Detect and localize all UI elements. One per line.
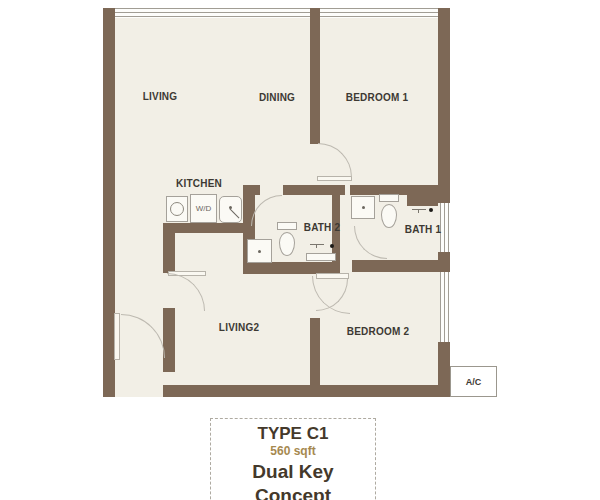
room-label-living2: LIVING2 [219,322,259,333]
room-label-bath1: BATH 1 [405,224,442,235]
room-label-bedroom2: BEDROOM 2 [347,326,409,337]
ac-ledge: A/C [450,366,497,397]
plan-area-label: 560 sqft [215,444,371,460]
room-label-bath2: BATH 2 [304,222,341,233]
toilet-tank-icon-bath1 [379,194,399,202]
room-label-kitchen: KITCHEN [176,178,222,189]
plan-concept-label: Dual Key Concept [215,460,371,500]
window-bedroom2 [440,272,449,342]
hob-burner-icon [170,202,184,216]
shower-step-bath2 [306,253,336,261]
room-label-living: LIVING [143,91,178,102]
room-label-bedroom1: BEDROOM 1 [346,92,408,103]
wall-bottom [163,385,450,397]
wall-kitchen-bottom [163,223,243,233]
room-label-dining: DINING [259,92,295,103]
toilet-tank-icon-bath2 [277,222,297,230]
washer-dryer-icon: W/D [190,194,217,223]
wall-living2-bedroom2 [310,318,320,385]
wall-right-top [438,8,450,203]
shower-mixer-icon-bath1 [412,207,426,213]
wall-corridor-lower [163,308,175,372]
shower-head-icon-bath2 [330,244,334,248]
wall-dining-bedroom1 [310,8,320,144]
title-block: TYPE C1 560 sqft Dual Key Concept [210,418,376,500]
wall-right-mid [438,252,450,272]
wall-bath1-shower [407,193,438,206]
sink-drain-icon [258,250,261,253]
door-leaf-entry [114,313,120,360]
window-top [115,8,438,18]
sink-drain-icon [362,206,365,209]
wall-bath1-bottom [352,260,438,272]
plan-type-label: TYPE C1 [215,423,371,444]
shower-head-icon-bath1 [429,208,433,212]
wall-corridor-upper [163,233,175,273]
shower-mixer-icon-bath2 [310,242,324,248]
